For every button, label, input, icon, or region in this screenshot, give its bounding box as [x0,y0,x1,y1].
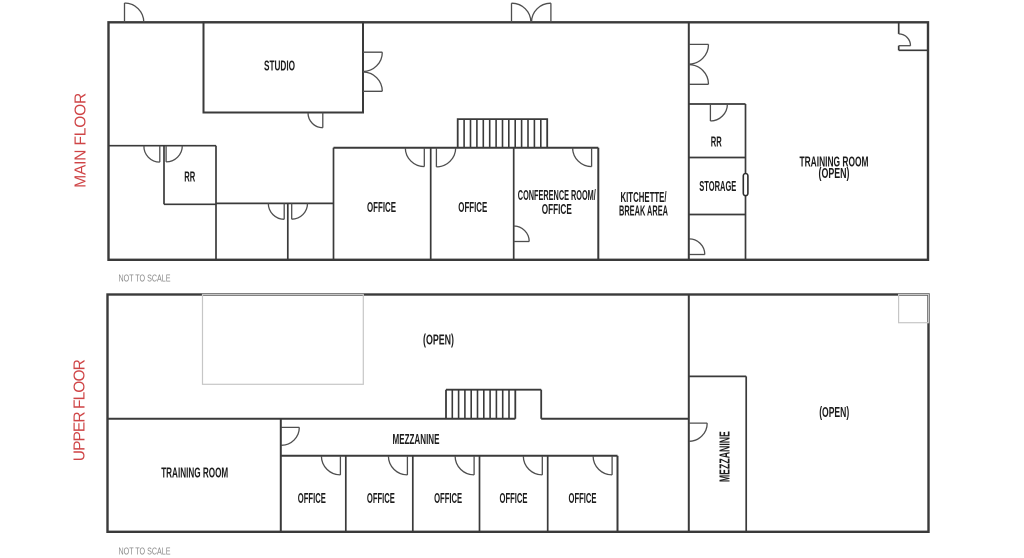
svg-text:NOT TO SCALE: NOT TO SCALE [119,273,171,284]
svg-text:MAIN FLOOR: MAIN FLOOR [73,93,90,188]
svg-text:(OPEN): (OPEN) [819,166,850,182]
svg-text:OFFICE: OFFICE [367,200,396,216]
svg-text:UPPER FLOOR: UPPER FLOOR [72,359,89,461]
svg-text:NOT TO SCALE: NOT TO SCALE [119,546,171,557]
svg-text:STORAGE: STORAGE [699,179,736,195]
svg-text:BREAK AREA: BREAK AREA [619,203,668,219]
svg-text:(OPEN): (OPEN) [819,405,849,421]
svg-text:OFFICE: OFFICE [500,491,528,507]
svg-text:OFFICE: OFFICE [298,491,326,507]
svg-text:OFFICE: OFFICE [542,202,572,218]
svg-text:RR: RR [711,134,722,150]
svg-text:MEZZANINE: MEZZANINE [718,431,734,482]
svg-text:OFFICE: OFFICE [367,491,395,507]
svg-text:TRAINING ROOM: TRAINING ROOM [161,466,228,482]
svg-text:MEZZANINE: MEZZANINE [393,432,440,448]
svg-text:(OPEN): (OPEN) [423,332,454,348]
svg-text:OFFICE: OFFICE [458,200,487,216]
svg-text:RR: RR [184,169,195,185]
svg-text:OFFICE: OFFICE [569,491,597,507]
svg-text:OFFICE: OFFICE [434,491,462,507]
svg-text:STUDIO: STUDIO [264,59,295,75]
